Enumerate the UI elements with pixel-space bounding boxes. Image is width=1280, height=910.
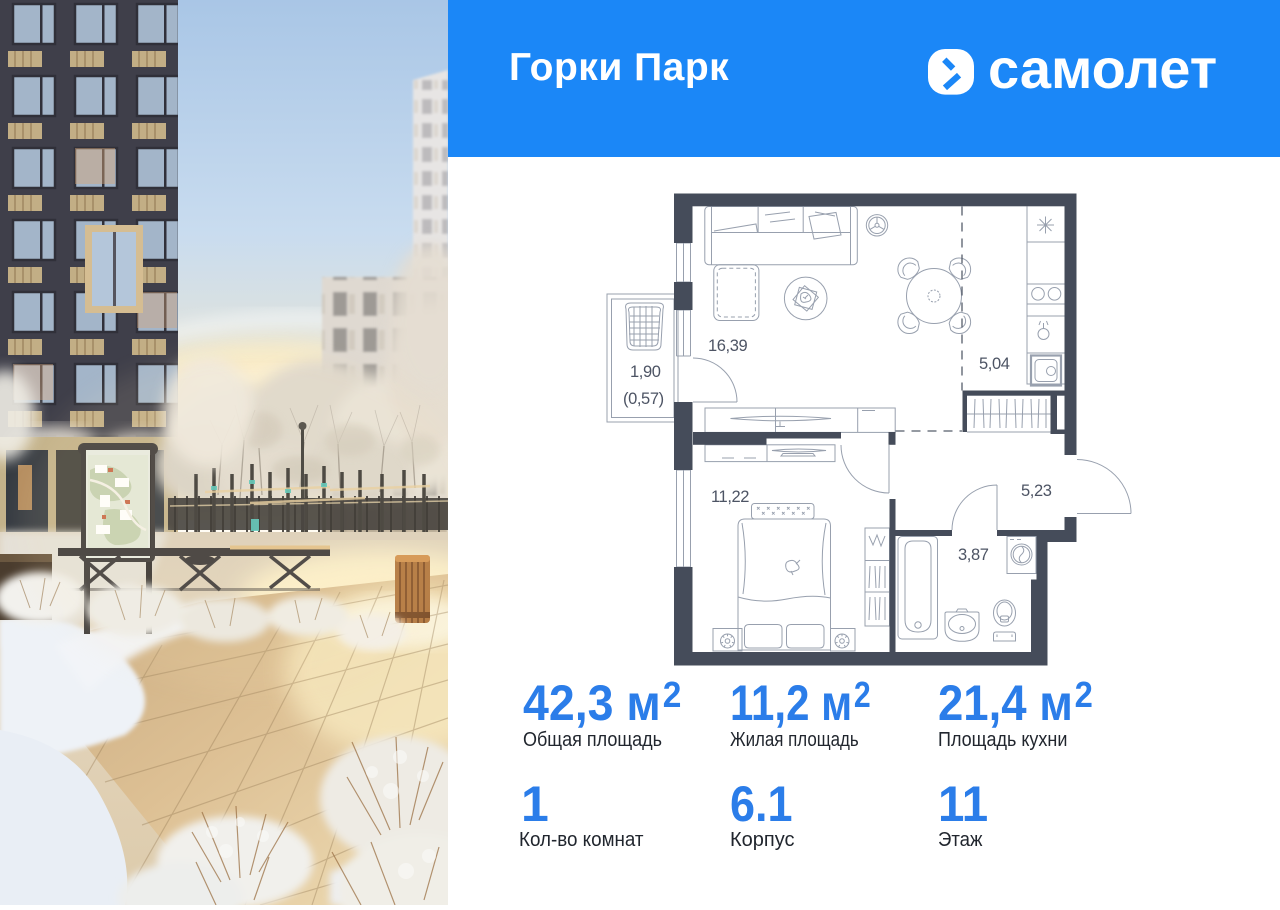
svg-text:5,04: 5,04 <box>979 355 1010 373</box>
svg-text:16,39: 16,39 <box>708 337 748 355</box>
svg-text:11,22: 11,22 <box>711 488 749 506</box>
svg-text:1,90: 1,90 <box>630 363 661 381</box>
svg-text:5,23: 5,23 <box>1021 482 1052 500</box>
svg-text:3,87: 3,87 <box>958 546 989 564</box>
svg-text:(0,57): (0,57) <box>623 390 664 408</box>
